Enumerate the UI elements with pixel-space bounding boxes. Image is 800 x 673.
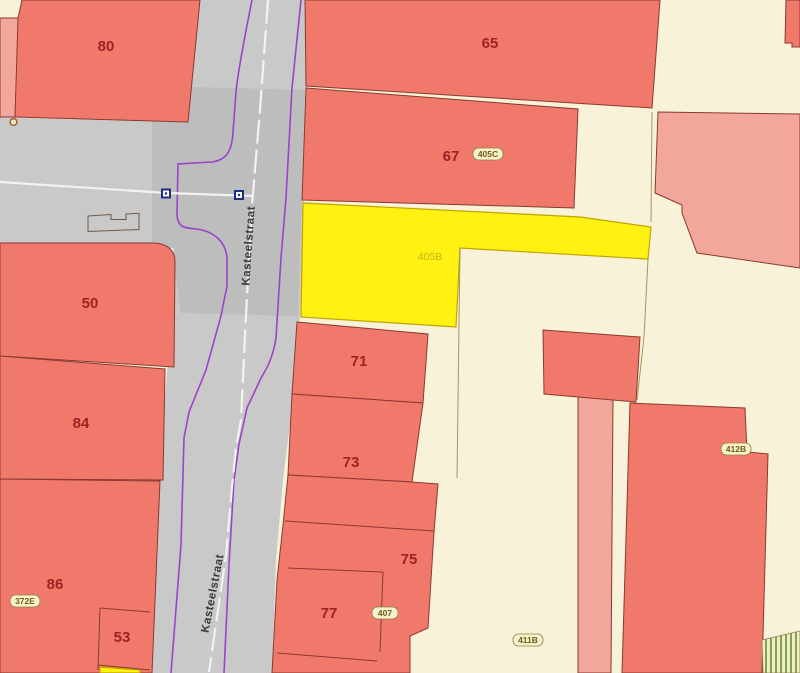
house-number-80: 80 xyxy=(98,38,115,55)
building-80[interactable] xyxy=(15,0,200,122)
building-86[interactable] xyxy=(0,479,160,673)
svg-text:412B: 412B xyxy=(726,444,746,454)
house-number-65: 65 xyxy=(482,35,499,52)
house-number-84: 84 xyxy=(73,415,90,432)
survey-marker-circle xyxy=(10,119,17,126)
house-number-53: 53 xyxy=(114,629,131,646)
survey-marker-square-right xyxy=(235,191,243,199)
parcel-tag-411b: 411B xyxy=(513,634,543,646)
building-light-strip[interactable] xyxy=(578,396,613,673)
building-67[interactable] xyxy=(302,88,578,208)
cadastral-map-view[interactable]: 80 65 67 50 84 86 53 71 73 75 77 Kasteel… xyxy=(0,0,800,673)
survey-marker-square-left xyxy=(162,190,170,198)
svg-text:372E: 372E xyxy=(15,596,35,606)
house-number-73: 73 xyxy=(343,454,360,471)
house-number-71: 71 xyxy=(351,353,368,370)
parcel-label-405b: 405B xyxy=(418,251,443,263)
parcel-tag-372e: 372E xyxy=(10,595,40,607)
map-canvas[interactable]: 80 65 67 50 84 86 53 71 73 75 77 Kasteel… xyxy=(0,0,800,673)
svg-text:411B: 411B xyxy=(518,635,538,645)
house-number-86: 86 xyxy=(47,576,64,593)
house-number-67: 67 xyxy=(443,148,460,165)
svg-text:407: 407 xyxy=(378,608,392,618)
parcel-tag-412b: 412B xyxy=(721,443,751,455)
parcel-tag-405c: 405C xyxy=(473,148,503,160)
house-number-77: 77 xyxy=(321,605,338,622)
svg-text:405C: 405C xyxy=(478,149,498,159)
house-number-75: 75 xyxy=(401,551,418,568)
building-east-of-73[interactable] xyxy=(543,330,640,402)
parcel-tag-407: 407 xyxy=(372,607,398,619)
building-topright-sliver[interactable] xyxy=(785,0,800,47)
house-number-50: 50 xyxy=(82,295,99,312)
